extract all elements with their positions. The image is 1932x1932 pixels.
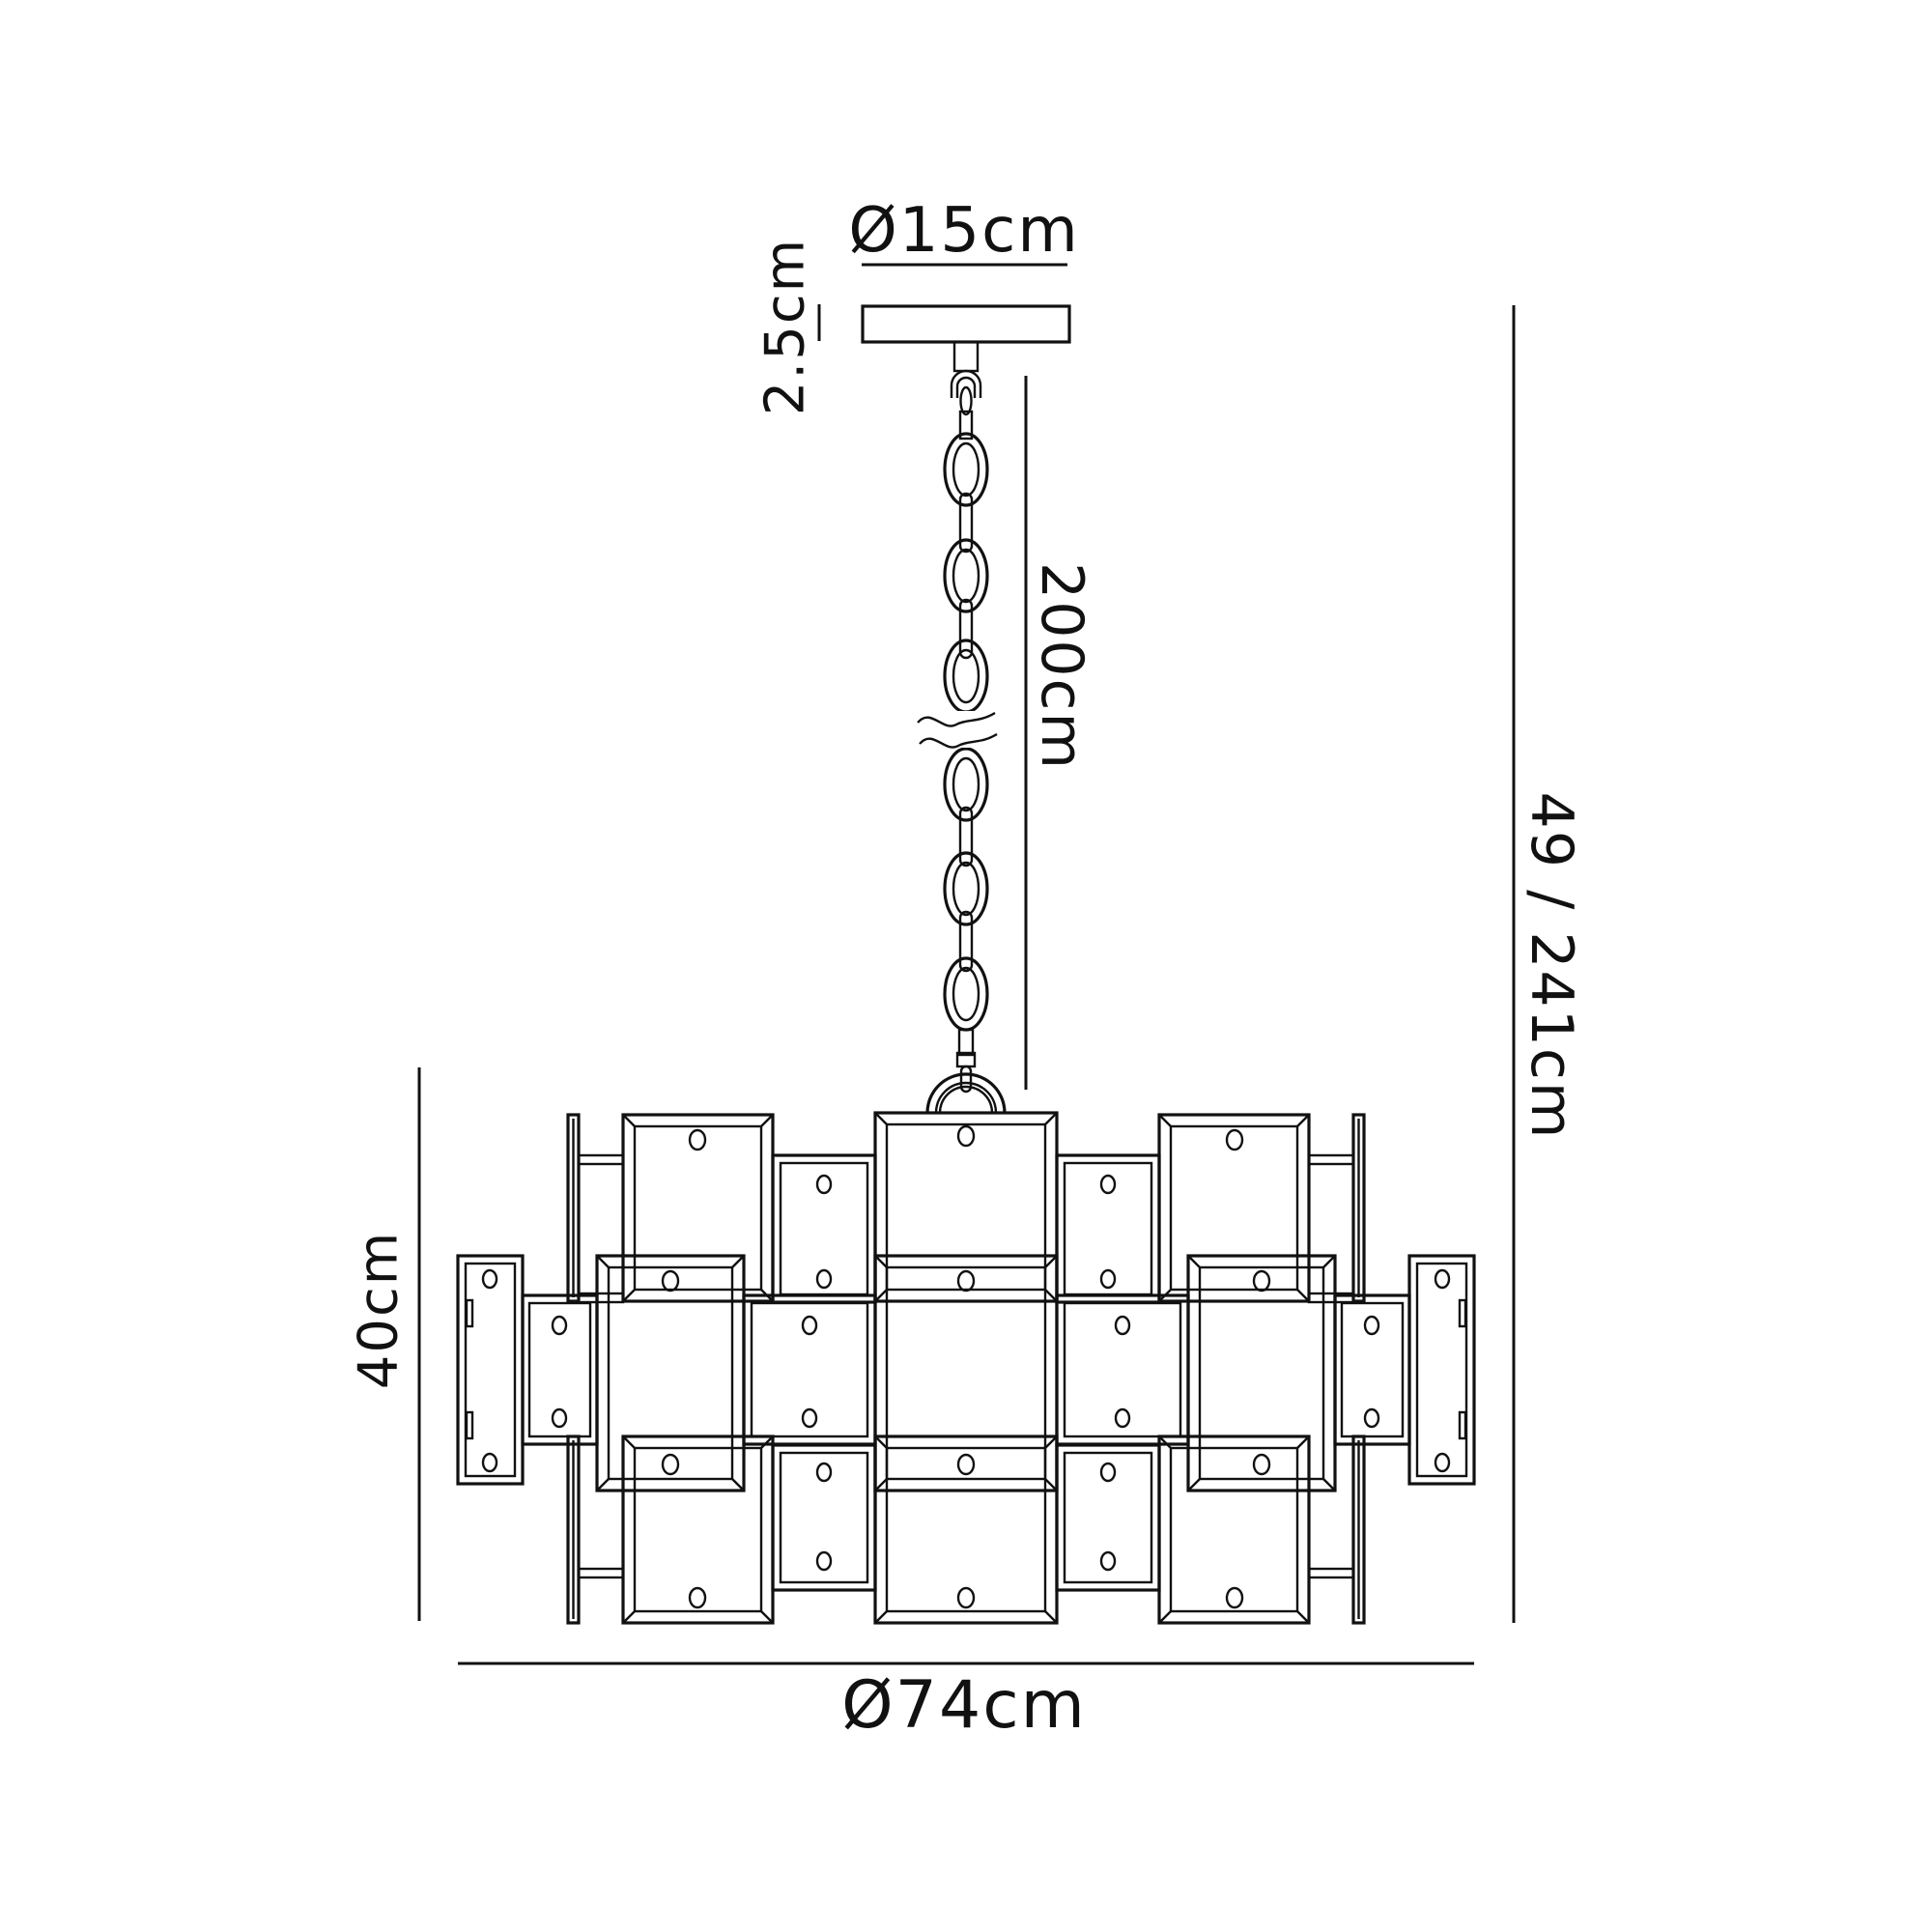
ceiling-canopy <box>863 306 1069 439</box>
label-body-diameter: Ø74cm <box>841 1667 1087 1744</box>
dimension-diagram: Ø15cm 2.5cm 200cm 49 / 241cm 40cm Ø74cm <box>0 0 1932 1932</box>
label-canopy-diameter: Ø15cm <box>848 195 1079 267</box>
chain-ferrule-bottom <box>959 1030 973 1055</box>
dimensions: Ø15cm 2.5cm 200cm 49 / 241cm 40cm Ø74cm <box>348 195 1585 1744</box>
label-canopy-height: 2.5cm <box>754 238 817 415</box>
back-panels <box>523 1155 1409 1590</box>
chain-break-symbol <box>918 711 1012 748</box>
chandelier-body <box>458 1074 1474 1623</box>
label-chain-length: 200cm <box>1028 562 1095 771</box>
suspension-chain <box>918 434 1012 1092</box>
label-overall-height: 49 / 241cm <box>1518 792 1585 1141</box>
connector-bars <box>579 1155 1353 1577</box>
diagram-canvas: Ø15cm 2.5cm 200cm 49 / 241cm 40cm Ø74cm <box>0 0 1932 1932</box>
front-panels-bottom <box>623 1436 1309 1623</box>
canopy-hook-outer <box>952 371 980 398</box>
front-panels-middle <box>597 1256 1335 1491</box>
canopy-stem <box>954 342 978 371</box>
canopy-plate <box>863 306 1069 342</box>
front-panels-top <box>623 1113 1309 1301</box>
canopy-link <box>961 387 972 414</box>
label-body-height: 40cm <box>348 1231 411 1390</box>
edge-strips <box>568 1115 1364 1623</box>
body-hook-loop <box>927 1074 1005 1113</box>
